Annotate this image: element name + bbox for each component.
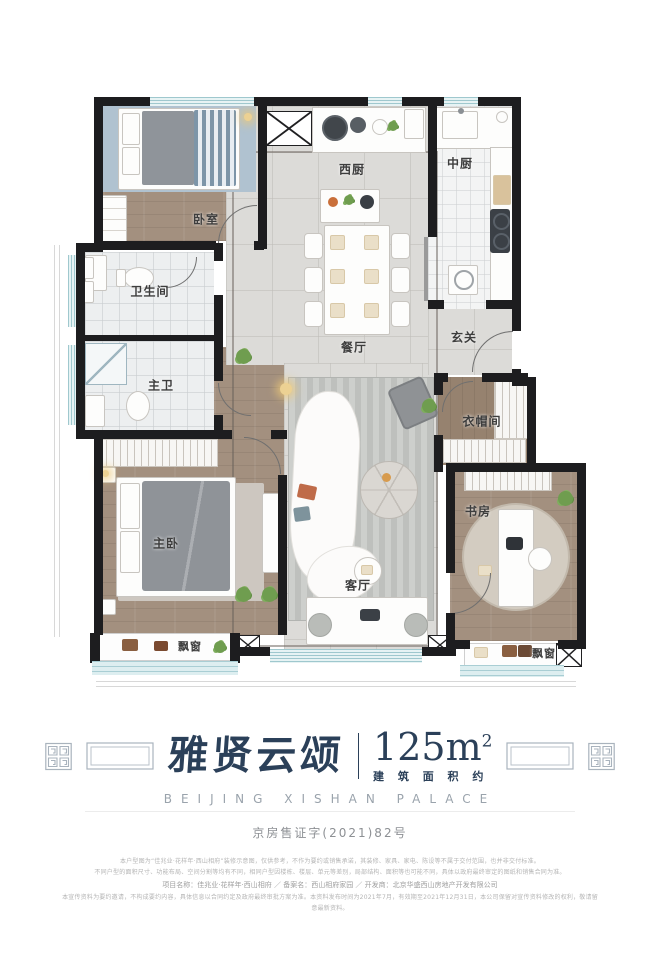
desk-chair [528, 547, 552, 571]
window-strip [444, 97, 478, 106]
disclaimer-line: 不同户型的面积尺寸、功能布局、空间分割等均有不同，相同户型因楼栋、楼层、单元等差… [60, 867, 600, 878]
food-icon [344, 195, 354, 205]
tv-device-icon [360, 609, 380, 621]
floor-plan: 卧室 卫生间 主卫 主卧 西厨 餐厅 中厨 玄关 衣帽间 书房 客厅 飘窗 飘窗 [66, 95, 596, 687]
burner-icon [493, 213, 510, 230]
room-label-bathroom: 卫生间 [130, 283, 169, 300]
wall [402, 97, 444, 106]
wardrobe [98, 439, 218, 467]
plant-icon [262, 587, 277, 602]
room-label-west-kitchen: 西厨 [339, 161, 365, 178]
cutting-board-icon [493, 175, 511, 205]
study-shelf [464, 469, 552, 491]
food-icon [360, 195, 374, 209]
window-strip [150, 97, 254, 106]
wall [434, 373, 443, 395]
wall [94, 241, 216, 250]
project-info-line: 项目名称：佳兆业·花样年·西山相府 ／ 备案名：西山相府家园 ／ 开发商：北京华… [60, 878, 600, 892]
wall [278, 475, 287, 635]
room-label-bedroom: 卧室 [193, 211, 219, 228]
wall [254, 97, 368, 106]
plant-icon [236, 349, 251, 364]
wall [90, 633, 100, 663]
clothes-rack [442, 439, 526, 463]
window-strip [368, 97, 402, 106]
floor-lamp-icon [280, 383, 292, 395]
room-label-bay-window-left: 飘窗 [178, 638, 202, 654]
lamp-icon [102, 470, 109, 477]
placemat-icon [364, 235, 379, 250]
chair [391, 233, 410, 259]
wall [258, 97, 267, 249]
wall [482, 373, 528, 382]
basin-icon [496, 111, 508, 123]
wall [428, 97, 437, 237]
shaft-x-icon [266, 111, 312, 146]
window-strip [270, 649, 422, 663]
wall [558, 640, 586, 649]
burner-icon [493, 233, 510, 250]
dimension-line [54, 245, 55, 637]
dimension-line [96, 686, 576, 687]
bedroom-cabinet [99, 195, 127, 243]
coffee-table [360, 461, 418, 519]
room-label-middle-kitchen: 中厨 [447, 155, 473, 172]
plaque-ornament-icon [86, 742, 154, 770]
cushion-icon [518, 645, 532, 657]
wall [94, 97, 103, 249]
area-value: 125m2 [373, 728, 492, 766]
plant-icon [422, 399, 436, 413]
blanket [142, 111, 194, 185]
divider-line [85, 811, 575, 812]
pillow [120, 483, 140, 529]
window-strip [68, 345, 76, 425]
cushion-icon [293, 506, 311, 522]
wall [428, 300, 444, 309]
plaque-ornament-icon [506, 742, 574, 770]
room-label-master-bath: 主卫 [148, 377, 174, 394]
wall [434, 435, 443, 472]
pot-icon [322, 115, 348, 141]
wall [76, 335, 221, 341]
placemat-icon [364, 269, 379, 284]
wall [486, 300, 514, 309]
pot-icon [350, 117, 366, 133]
placemat-icon [330, 303, 345, 318]
pillow [122, 147, 140, 175]
cushion-icon [502, 645, 517, 657]
food-icon [328, 197, 338, 207]
wall [236, 647, 270, 656]
room-label-living: 客厅 [345, 577, 371, 594]
chair [391, 301, 410, 327]
striped-blanket [194, 110, 236, 186]
wall [214, 243, 223, 261]
book-icon [474, 647, 488, 658]
clothes-rack [494, 381, 528, 439]
wall [577, 463, 586, 649]
sink-icon [442, 111, 478, 139]
hood-cabinet [404, 109, 424, 139]
project-name: 雅贤云颂 [166, 736, 345, 776]
wall [94, 430, 103, 635]
disclaimer-line: 本户型图为“佳兆业·花样年·西山相府”装修示意图，仅供参考，不作为要约或销售承诺… [60, 856, 600, 867]
stool [308, 613, 332, 637]
bay-window-glass [460, 665, 564, 677]
wall [512, 97, 521, 305]
room-label-study: 书房 [465, 503, 491, 520]
chair [304, 233, 323, 259]
disclaimer-block: 本户型图为“佳兆业·花样年·西山相府”装修示意图，仅供参考，不作为要约或销售承诺… [60, 856, 600, 914]
area-number: 125m [373, 725, 482, 769]
placemat-icon [330, 269, 345, 284]
plate-icon [372, 119, 388, 135]
room-label-master-bedroom: 主卧 [153, 535, 179, 552]
room-label-bay-window-right: 飘窗 [532, 645, 556, 661]
sales-license-number: 京房售证字(2021)82号 [0, 824, 660, 841]
wall [446, 463, 586, 472]
lattice-ornament-icon [45, 741, 72, 772]
room-label-cloakroom: 衣帽间 [462, 413, 501, 430]
pillow [120, 531, 140, 573]
area-caption: 建 筑 面 积 约 [373, 768, 488, 784]
wall [214, 430, 232, 439]
room-label-entry: 玄关 [451, 329, 477, 346]
lattice-ornament-icon [588, 741, 615, 772]
laptop-icon [506, 537, 523, 550]
placemat-icon [330, 235, 345, 250]
disclaimer-line: 本宣传资料为要约邀请，不构成要约内容，具体信息以合同约定及政府最终审批方案为准。… [60, 892, 600, 914]
brand-row: 雅贤云颂 125m2 建 筑 面 积 约 [0, 726, 660, 786]
plant-icon [214, 641, 226, 653]
sink-icon [85, 395, 105, 427]
poster-page: { "plan": { "rooms": { "bedroom": "卧室", … [0, 0, 660, 957]
area-superscript: 2 [482, 731, 493, 751]
tray-icon [361, 565, 373, 575]
wall [527, 377, 536, 471]
stool [404, 613, 428, 637]
cushion-icon [122, 639, 138, 651]
plant-icon [236, 587, 251, 602]
shower-icon [85, 343, 127, 385]
faucet-icon [458, 108, 464, 114]
title-divider [358, 733, 360, 779]
sliding-door [424, 237, 428, 301]
lamp-icon [244, 113, 252, 121]
toilet-icon [126, 391, 150, 421]
dimension-line [96, 681, 576, 682]
chair [391, 267, 410, 293]
chair [304, 301, 323, 327]
toilet-tank [116, 269, 126, 287]
wall [271, 430, 287, 439]
wall [254, 241, 264, 250]
placemat-icon [364, 303, 379, 318]
area-block: 125m2 建 筑 面 积 约 [373, 728, 492, 784]
vegetable-icon [388, 121, 398, 131]
dimension-line [59, 245, 60, 637]
washer-door-icon [454, 270, 474, 290]
room-label-dining: 餐厅 [341, 339, 367, 356]
chair [304, 267, 323, 293]
decor-icon [382, 473, 391, 482]
pillow [122, 113, 140, 145]
wall [446, 463, 455, 573]
window-strip [68, 255, 76, 327]
project-name-english: BEIJING XISHAN PALACE [0, 792, 660, 806]
bay-window-glass [92, 661, 238, 675]
wall [446, 613, 455, 649]
box-icon [154, 641, 168, 651]
plant-icon [558, 491, 573, 506]
